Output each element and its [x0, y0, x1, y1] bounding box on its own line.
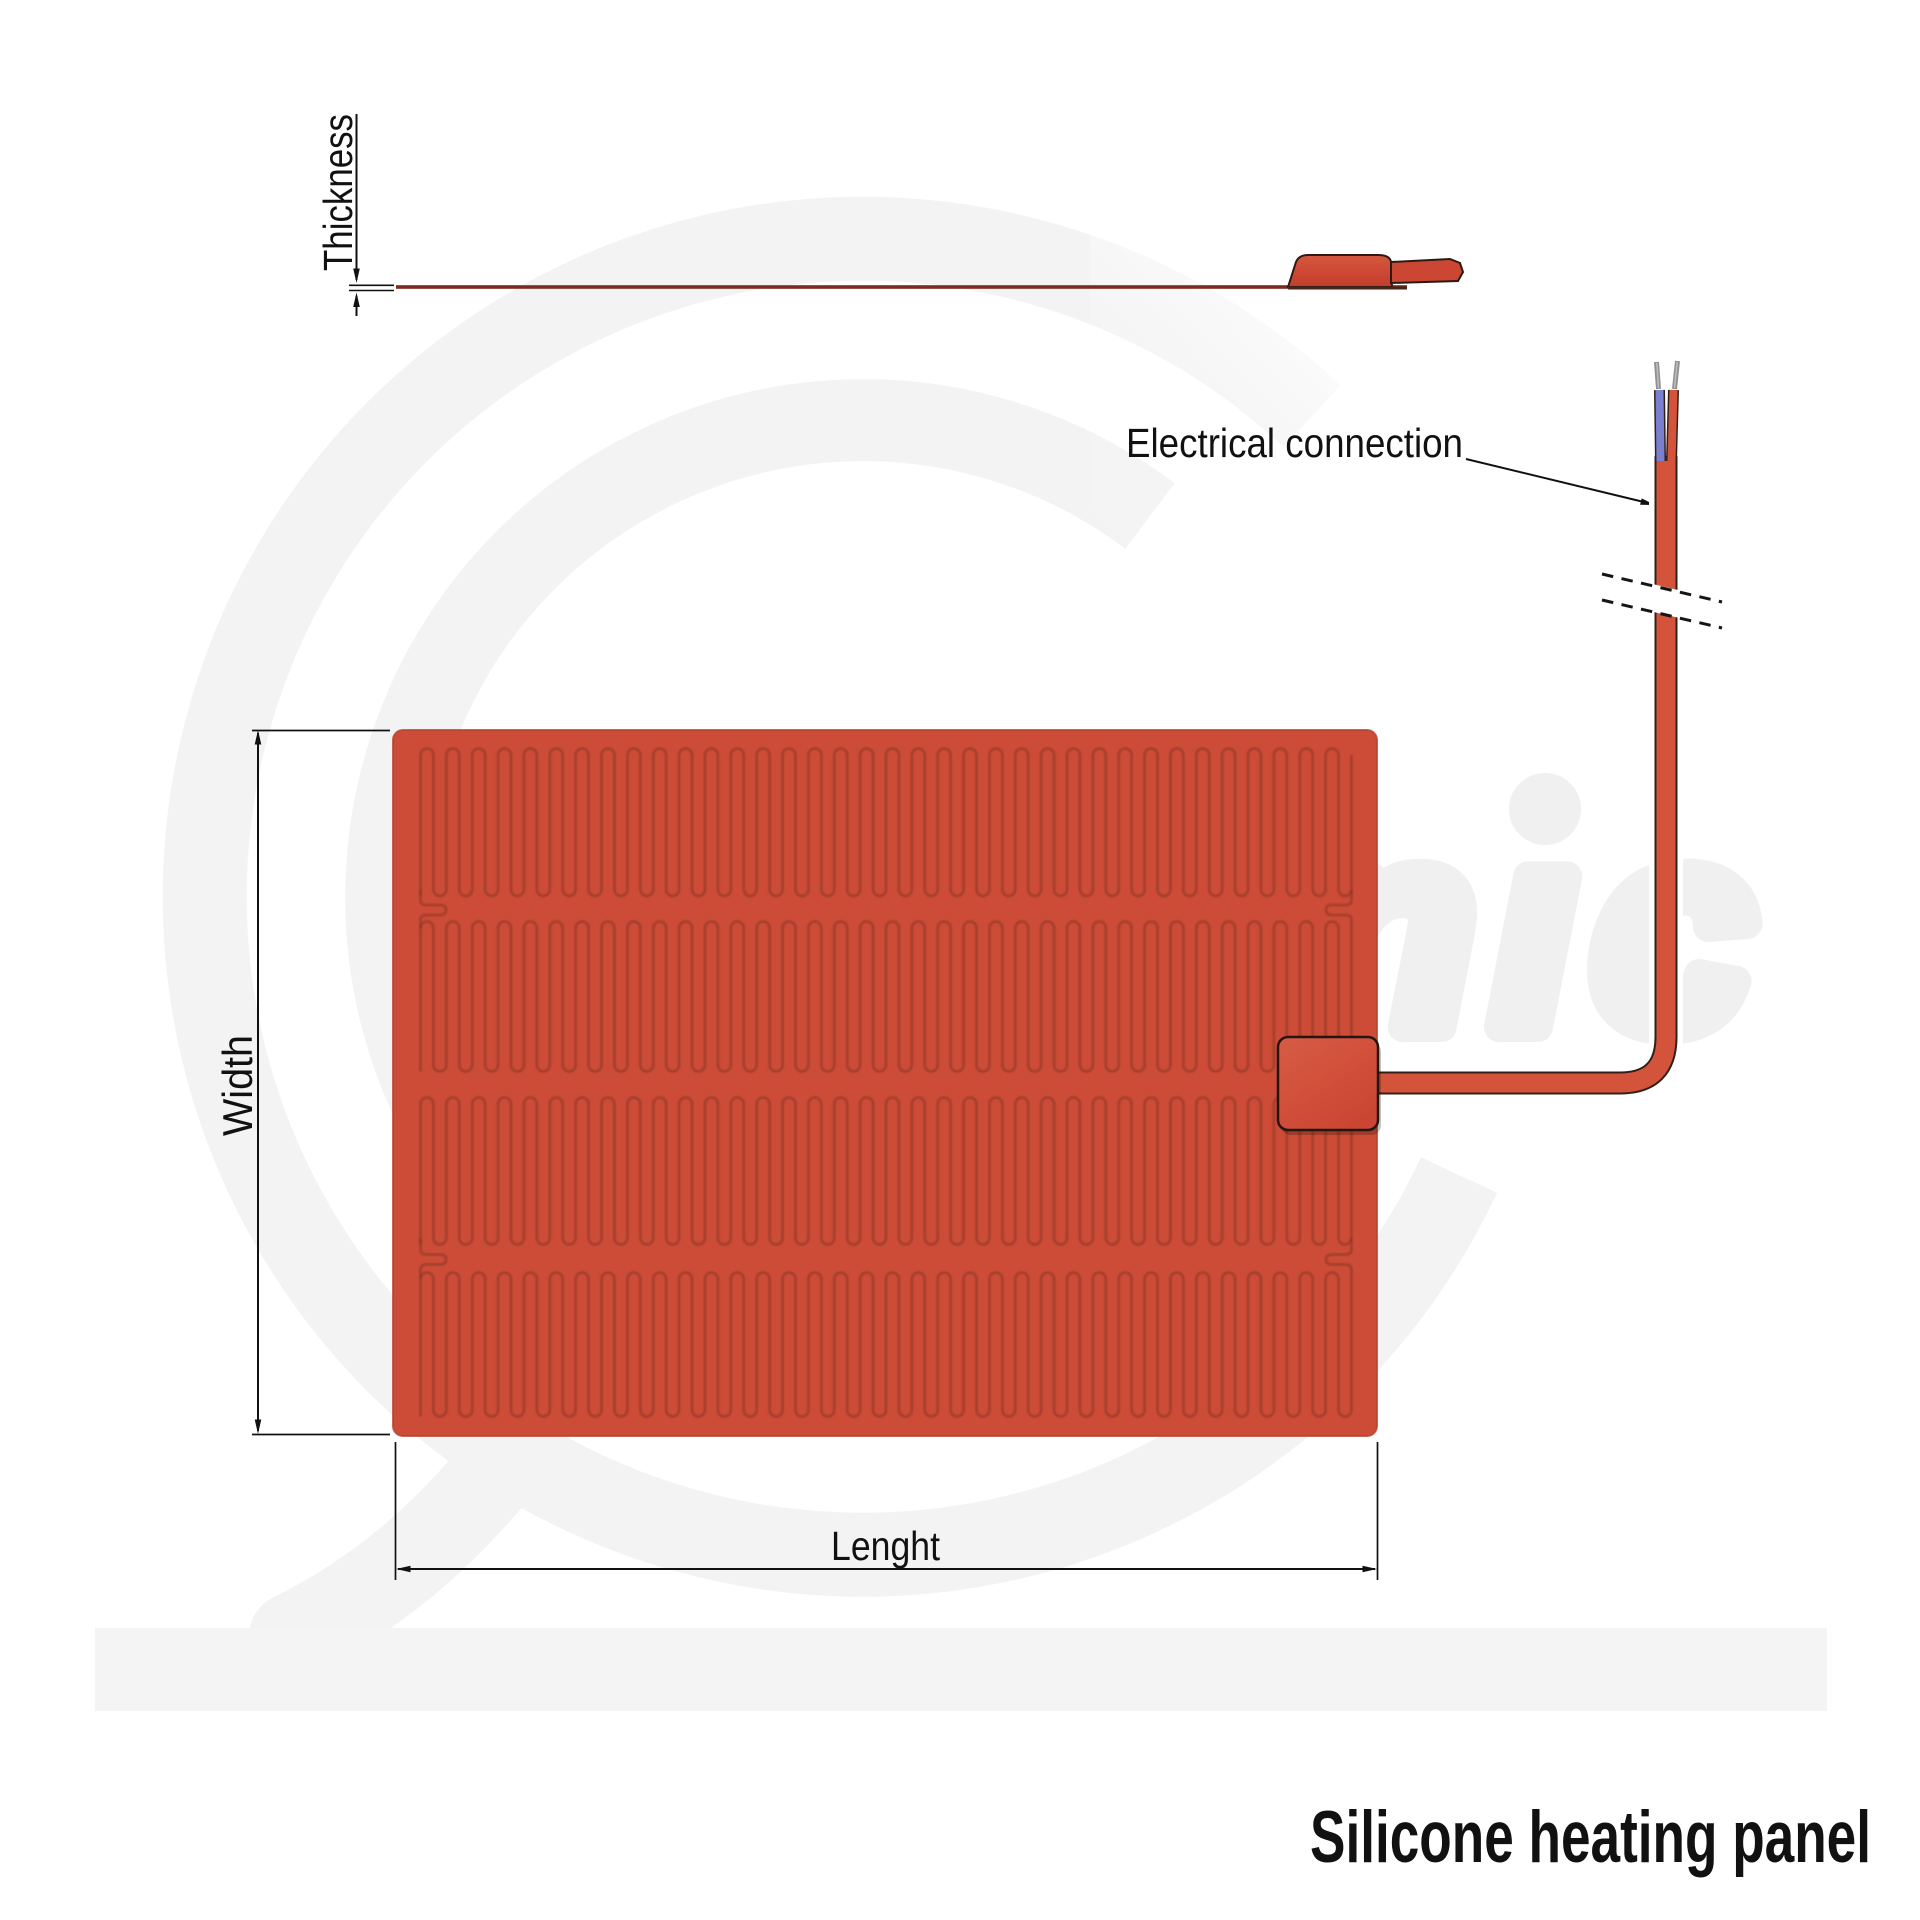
svg-text:Electrical connection: Electrical connection — [1126, 420, 1463, 466]
svg-text:Width: Width — [214, 1035, 261, 1136]
svg-text:Silicone heating panel: Silicone heating panel — [1310, 1797, 1871, 1878]
svg-text:Lenght: Lenght — [831, 1523, 941, 1569]
svg-text:Thickness: Thickness — [315, 114, 361, 271]
